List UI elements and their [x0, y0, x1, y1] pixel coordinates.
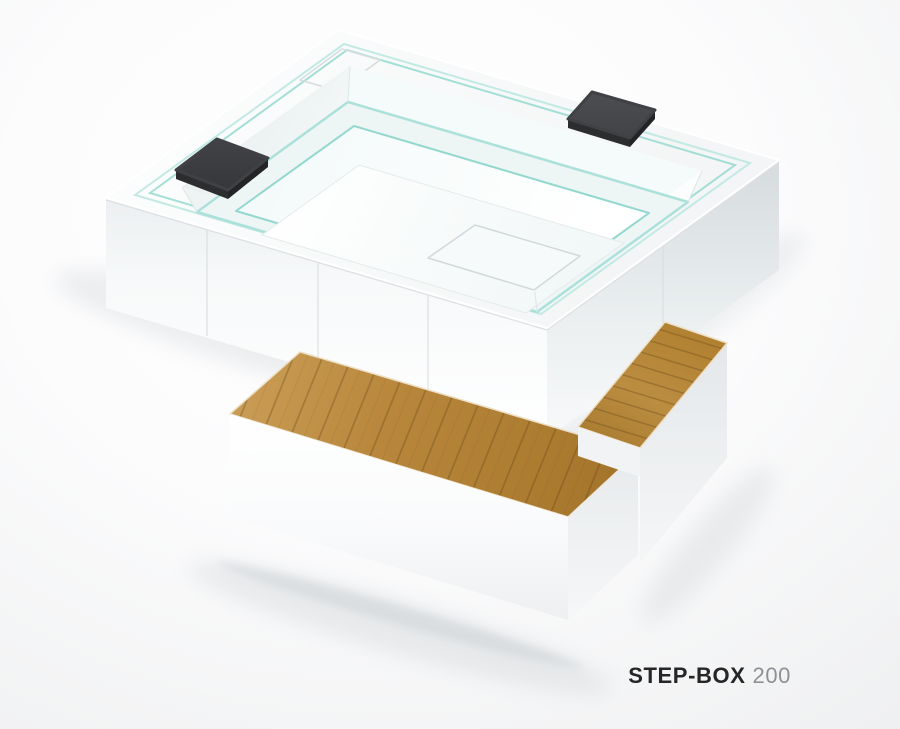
- spa-render: [0, 0, 900, 729]
- product-model-label: 200: [752, 663, 791, 688]
- product-series-label: STEP-BOX: [628, 663, 745, 688]
- product-caption: STEP-BOX200: [628, 662, 791, 690]
- product-page: STEP-BOX200: [0, 0, 900, 729]
